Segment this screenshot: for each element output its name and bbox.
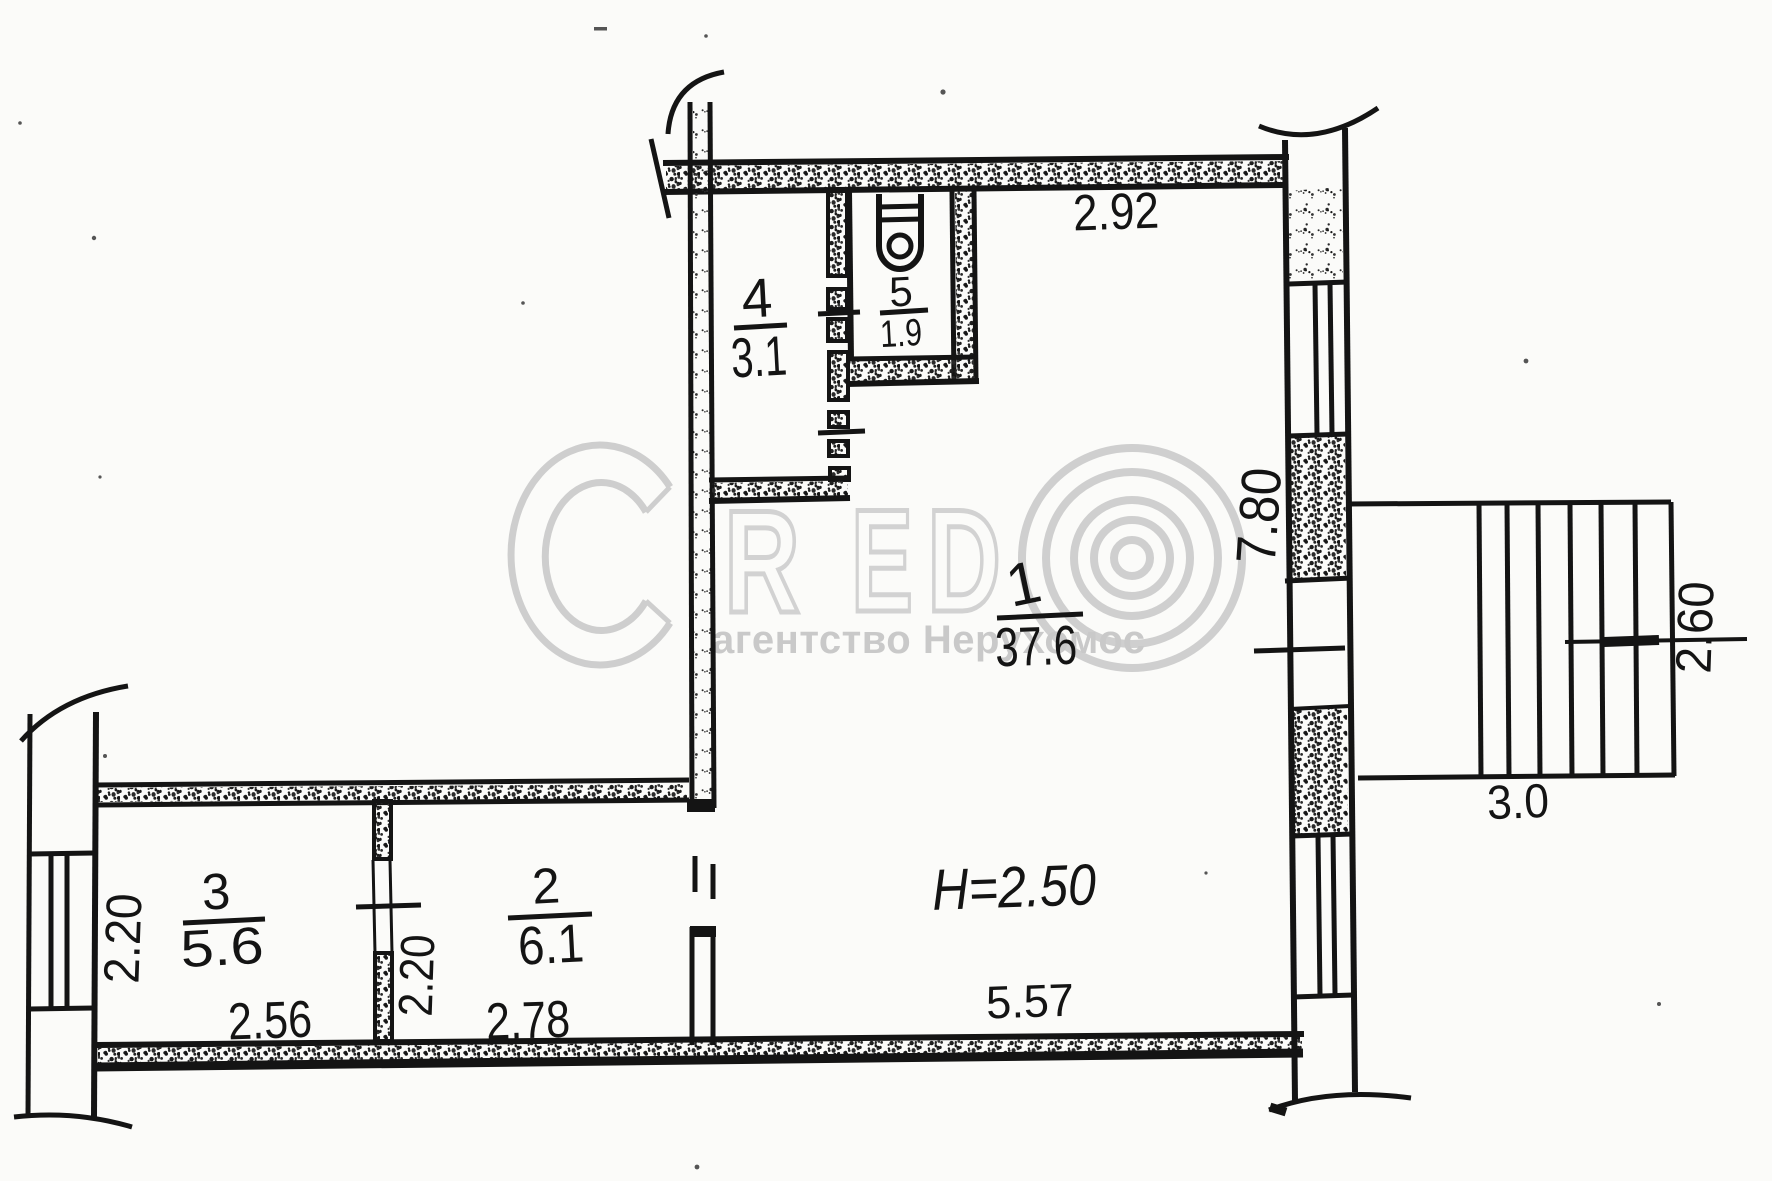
svg-text:2.78: 2.78 bbox=[485, 991, 571, 1052]
svg-text:2.56: 2.56 bbox=[227, 991, 313, 1052]
svg-text:2: 2 bbox=[531, 857, 562, 914]
svg-text:H=2.50: H=2.50 bbox=[931, 852, 1097, 923]
svg-text:3.1: 3.1 bbox=[729, 324, 788, 390]
svg-text:37.6: 37.6 bbox=[994, 614, 1078, 679]
svg-text:2.92: 2.92 bbox=[1072, 182, 1160, 242]
svg-text:3: 3 bbox=[200, 862, 231, 920]
svg-text:3.0: 3.0 bbox=[1486, 775, 1550, 830]
svg-text:2.20: 2.20 bbox=[93, 892, 152, 984]
svg-text:5.57: 5.57 bbox=[985, 973, 1075, 1028]
svg-text:2.20: 2.20 bbox=[390, 934, 446, 1018]
svg-text:2.60: 2.60 bbox=[1665, 580, 1724, 674]
svg-text:агентство Нерухомос: агентство Нерухомос bbox=[712, 618, 1145, 662]
svg-text:1.9: 1.9 bbox=[879, 312, 923, 356]
svg-text:7.80: 7.80 bbox=[1224, 466, 1294, 566]
svg-text:6.1: 6.1 bbox=[516, 913, 585, 976]
svg-text:5.6: 5.6 bbox=[179, 917, 265, 979]
svg-text:5: 5 bbox=[888, 267, 914, 315]
svg-text:4: 4 bbox=[740, 266, 774, 330]
